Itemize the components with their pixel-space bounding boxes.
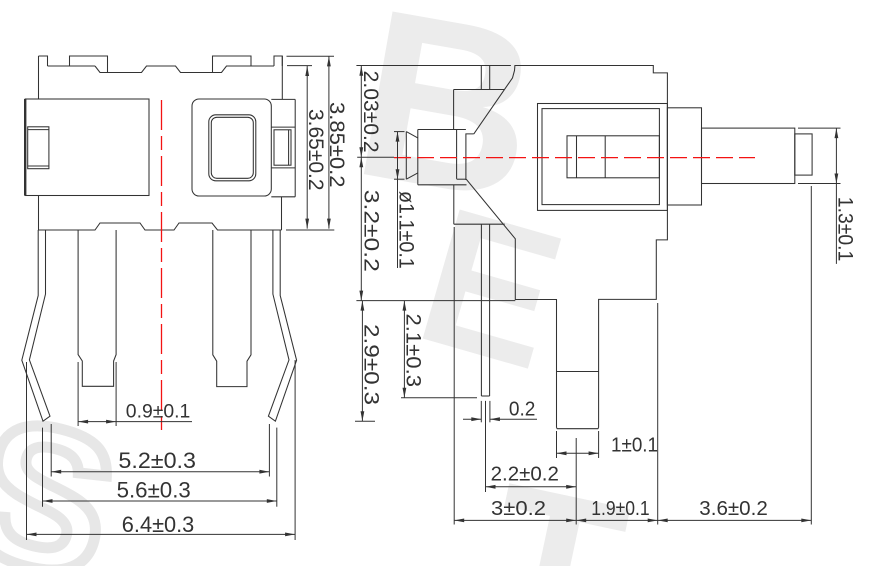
- svg-text:2.9±0.3: 2.9±0.3: [360, 324, 383, 405]
- svg-text:3.2±0.2: 3.2±0.2: [360, 190, 383, 272]
- svg-text:3.6±0.2: 3.6±0.2: [699, 498, 768, 520]
- svg-text:2.03±0.2: 2.03±0.2: [359, 71, 382, 153]
- svg-text:2.1±0.3: 2.1±0.3: [402, 314, 425, 388]
- svg-text:1±0.1: 1±0.1: [611, 435, 658, 457]
- svg-text:3±0.2: 3±0.2: [491, 498, 546, 520]
- svg-text:ø1.1±0.1: ø1.1±0.1: [395, 191, 418, 269]
- svg-text:1.9±0.1: 1.9±0.1: [591, 498, 649, 520]
- svg-text:5.6±0.3: 5.6±0.3: [117, 478, 191, 503]
- svg-text:0.2: 0.2: [509, 399, 536, 421]
- svg-text:1.3±0.1: 1.3±0.1: [834, 197, 857, 261]
- svg-text:6.4±0.3: 6.4±0.3: [122, 512, 195, 537]
- svg-text:3.85±0.2: 3.85±0.2: [325, 102, 348, 188]
- svg-text:S: S: [0, 374, 136, 566]
- svg-text:3.65±0.2: 3.65±0.2: [304, 109, 327, 191]
- svg-text:0.9±0.1: 0.9±0.1: [126, 401, 191, 423]
- svg-text:5.2±0.3: 5.2±0.3: [118, 448, 196, 473]
- svg-text:2.2±0.2: 2.2±0.2: [491, 463, 559, 485]
